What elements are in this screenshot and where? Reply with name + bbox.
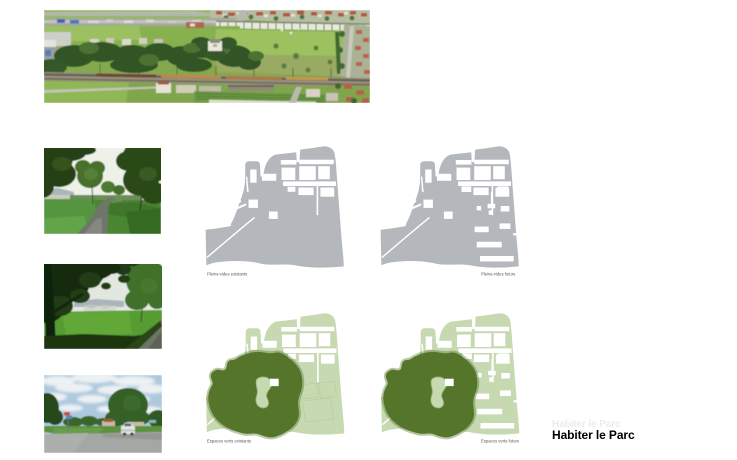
svg-text:Pleins-vides existants: Pleins-vides existants <box>207 272 247 277</box>
svg-text:Pleins-vides futurs: Pleins-vides futurs <box>481 272 515 277</box>
svg-text:Espaces verts futurs: Espaces verts futurs <box>481 439 519 444</box>
svg-text:Espaces verts existants: Espaces verts existants <box>207 439 251 444</box>
